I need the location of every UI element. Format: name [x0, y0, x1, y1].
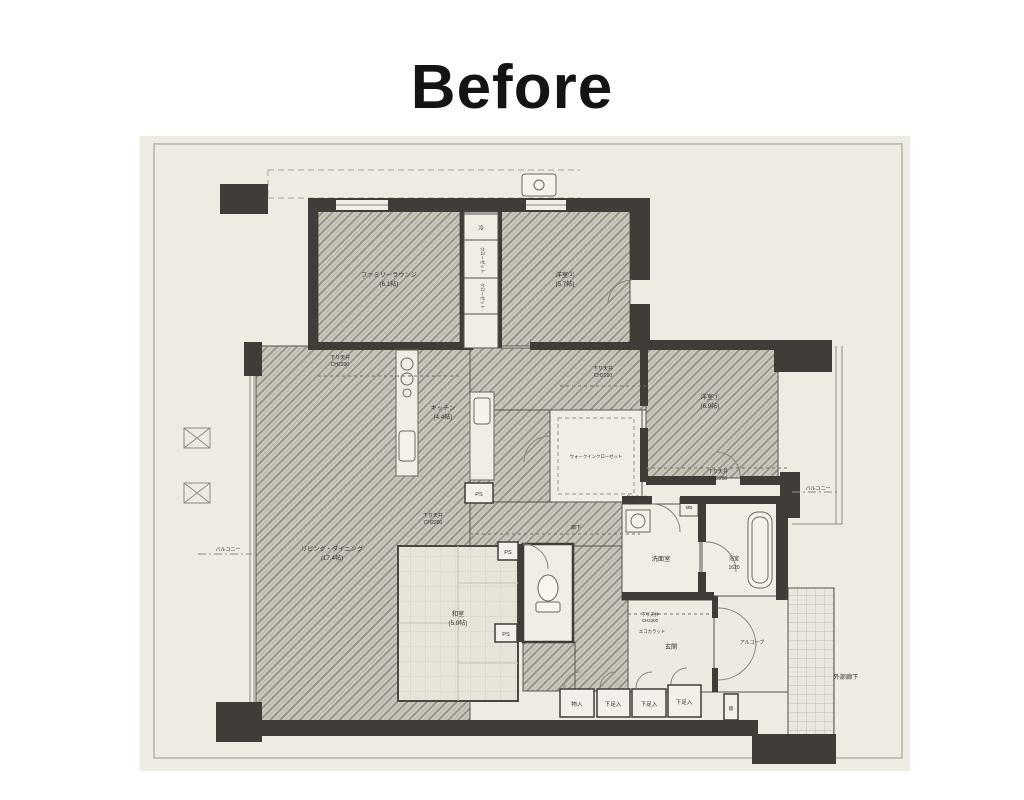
label-bathroom: 浴室 [729, 555, 739, 562]
label-ceiling-4: 下り天井 [423, 512, 443, 519]
label-ceiling-3b: CH2200 [709, 476, 728, 482]
label-wic: ウォークインクローゼット [570, 453, 623, 460]
range-hood-icon [522, 174, 556, 196]
label-shoe-2: 下足入 [641, 701, 658, 708]
bathtub-icon [748, 512, 772, 588]
washer-icon [626, 510, 650, 532]
label-entrance: 玄関 [665, 643, 677, 651]
label-refrigerator: 冷 [478, 224, 484, 232]
label-kitchen-size: (4.4帖) [434, 413, 453, 421]
label-mb: MB [686, 505, 693, 510]
page: { "title": "Before", "rooms": { "family_… [0, 0, 1024, 800]
label-shoe-3: 下足入 [676, 699, 693, 706]
entry-hall-2 [523, 642, 575, 691]
label-ceiling-2: 下り天井 [593, 365, 613, 372]
label-ceiling-3: 下り天井 [708, 468, 728, 475]
label-ceiling-1b: CH2200 [331, 362, 350, 368]
hallway-area [470, 502, 642, 546]
label-closet-2: クローゼット [479, 283, 486, 309]
label-balcony-left: バルコニー [216, 547, 241, 553]
label-japanese-room-size: (5.9帖) [449, 619, 468, 627]
label-ceiling-2b: CH2200 [594, 373, 613, 379]
label-washroom: 洗面室 [652, 555, 671, 563]
label-bedroom-right-size: (6.9帖) [701, 402, 720, 410]
floor-plan-drawing: ファミリーラウンジ (6.1帖) 洋室② (5.7帖) 洋室① (6.9帖) リ… [140, 136, 910, 771]
label-ps-3: PS [502, 632, 510, 638]
toilet-icon [536, 575, 560, 612]
label-living-dining: リビング・ダイニング [301, 545, 363, 553]
label-shoe-1: 下足入 [605, 701, 622, 708]
label-living-dining-size: (17.4帖) [321, 554, 343, 562]
label-bedroom-right: 洋室① [701, 393, 720, 401]
entry-hall [573, 546, 630, 691]
upper-hall [470, 348, 646, 410]
label-balcony-right: バルコニー [806, 486, 831, 492]
closet-column [464, 212, 498, 348]
label-kitchen: キッチン [431, 405, 456, 412]
label-alcove: アルコーブ [740, 639, 765, 646]
room-bedroom-right [646, 348, 778, 478]
label-ceiling-4b: CH2200 [424, 520, 443, 526]
label-ceiling-5: 下り天井 [641, 611, 659, 618]
label-ceiling-1: 下り天井 [330, 354, 350, 361]
label-closet-1: クローゼット [479, 247, 486, 273]
label-ceiling-5b: CH2200 [642, 618, 659, 623]
label-ps-1: PS [475, 492, 483, 498]
label-monoire: 物入 [571, 700, 583, 708]
label-family-lounge-size: (6.1帖) [380, 280, 399, 288]
label-bedroom-top-size: (5.7帖) [556, 280, 575, 288]
label-mirror: 鏡 [729, 705, 734, 712]
page-title: Before [0, 52, 1024, 123]
label-japanese-room: 和室 [452, 610, 464, 618]
label-family-lounge: ファミリーラウンジ [361, 271, 417, 279]
floor-plan: ファミリーラウンジ (6.1帖) 洋室② (5.7帖) 洋室① (6.9帖) リ… [140, 136, 910, 776]
label-bathroom-size: 1620 [728, 565, 739, 571]
label-bedroom-top: 洋室② [556, 271, 575, 279]
label-hallway: 廊下 [571, 524, 581, 531]
label-ps-2: PS [504, 550, 512, 556]
label-outside-corridor: 外部廊下 [834, 673, 859, 681]
